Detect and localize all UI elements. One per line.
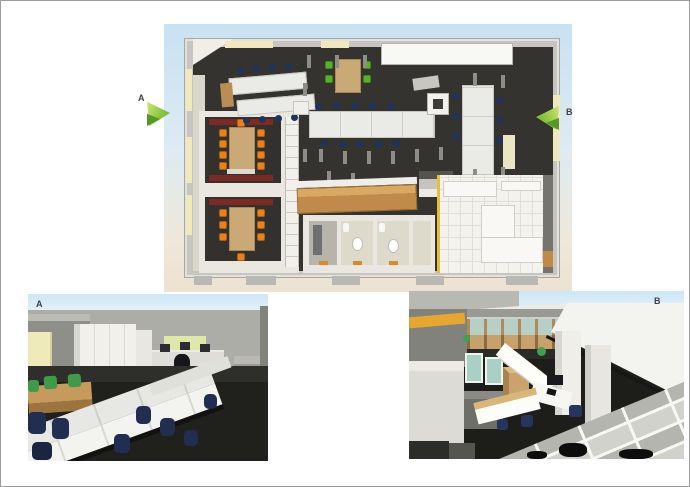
left-wall-top (28, 314, 90, 321)
chair-orange (257, 221, 265, 229)
chair-orange (219, 151, 227, 159)
chair-green (363, 75, 371, 83)
light-fixture (303, 149, 307, 162)
wall-footing (246, 276, 276, 285)
chair-green (28, 380, 39, 392)
reception-counter-wood (297, 184, 418, 214)
chair-navy (453, 133, 460, 140)
light-fixture (473, 73, 477, 86)
wall-footing (194, 276, 212, 285)
sink (379, 223, 385, 232)
chair-navy (114, 434, 130, 453)
chair-orange (219, 221, 227, 229)
chair-navy (269, 64, 276, 71)
light-fixture (335, 55, 339, 68)
printer-dark (547, 375, 563, 385)
desk-bank (462, 85, 494, 175)
chair-orange (257, 140, 265, 148)
side-cabinet (293, 101, 309, 115)
shower-panel (313, 225, 322, 255)
chair-navy (184, 430, 198, 446)
chair-navy (496, 137, 503, 144)
chair-navy (204, 394, 217, 409)
sideboard-dark-red (209, 175, 273, 181)
light-fixture (363, 55, 367, 68)
chair-navy (453, 93, 460, 100)
chair-navy (496, 117, 503, 124)
side-table-wood (220, 83, 234, 108)
door-mat (389, 261, 398, 265)
chair-orange (257, 151, 265, 159)
office-chair-black (619, 449, 653, 459)
office-chair-black (559, 443, 587, 457)
low-cabinet-gray (449, 443, 475, 459)
chair-navy (315, 103, 322, 110)
chair-navy (237, 67, 244, 74)
wall-footing (506, 276, 538, 285)
chair-navy (351, 102, 358, 109)
floor-plan-render (164, 24, 572, 292)
chair-navy (259, 116, 266, 123)
plan-marker-a-label: A (138, 94, 145, 103)
building-outline (184, 38, 560, 278)
chair-orange (237, 253, 245, 261)
sideboard-dark-red (209, 199, 273, 205)
chair-green (325, 61, 333, 69)
window-strip (321, 41, 349, 48)
view-direction-arrow-right-icon (147, 99, 171, 126)
chair-orange (257, 162, 265, 170)
chair-navy (369, 102, 376, 109)
meeting-table (229, 127, 255, 171)
chair-navy (453, 113, 460, 120)
chair-navy (496, 97, 503, 104)
chair-navy (32, 442, 52, 460)
chair-orange (219, 162, 227, 170)
storage-floor (413, 221, 431, 265)
floor-sheen (28, 366, 268, 382)
chair-orange (219, 209, 227, 217)
monitor (200, 344, 210, 352)
light-fixture (415, 149, 419, 162)
meeting-table (229, 207, 255, 251)
wall-footing (416, 276, 444, 285)
light-fixture (501, 75, 505, 88)
chair-navy (243, 117, 250, 124)
chair-navy (339, 141, 346, 148)
chair-navy (275, 115, 282, 122)
chair-navy (321, 140, 328, 147)
stool-navy (569, 405, 582, 417)
glass-screen-teal (485, 357, 503, 385)
plant-green (537, 347, 546, 356)
chair-green (44, 376, 58, 390)
chair-orange (257, 129, 265, 137)
sink (343, 223, 349, 232)
projector-table (227, 169, 255, 174)
monitor (180, 342, 190, 350)
light-fixture (303, 83, 307, 96)
light-fixture (439, 147, 443, 160)
plan-marker-b-label: B (566, 108, 573, 117)
perspective-view-a: A (28, 294, 268, 461)
chair-navy (160, 418, 175, 436)
chair-navy (357, 141, 364, 148)
chair-navy (393, 140, 400, 147)
counter-white (501, 181, 541, 191)
chair-orange (257, 209, 265, 217)
low-cabinet-dark (409, 441, 449, 459)
floor-mat-yellow (503, 135, 515, 169)
window-strip (225, 41, 273, 48)
chair-orange (219, 129, 227, 137)
view-b-label: B (654, 297, 661, 306)
wood-door (543, 251, 553, 267)
light-fixture (391, 151, 395, 164)
chair-navy (28, 412, 46, 434)
light-fixture (367, 151, 371, 164)
perspective-view-b: B (409, 291, 684, 459)
door-mat (353, 261, 362, 265)
door-mat (319, 261, 328, 265)
glass-screen-teal (465, 353, 483, 383)
yellow-wall-edge (437, 175, 440, 273)
office-chair-black (527, 451, 547, 459)
light-fixture (343, 151, 347, 164)
tall-cabinet-column (585, 345, 611, 425)
chair-orange (219, 140, 227, 148)
stool-navy (497, 419, 508, 430)
plant-green (463, 335, 470, 342)
chair-green (325, 75, 333, 83)
light-fixture (319, 149, 323, 162)
counter-white (443, 181, 497, 197)
view-direction-arrow-left-icon (535, 103, 559, 130)
chair-orange (257, 233, 265, 241)
desk-bank (309, 111, 435, 138)
window-strip (186, 137, 192, 183)
island-counter (481, 237, 543, 263)
chair-navy (52, 418, 69, 439)
chair-navy (291, 114, 298, 121)
skylight (381, 43, 513, 65)
chair-green (68, 374, 82, 388)
window-strip (186, 69, 192, 111)
view-a-label: A (36, 300, 43, 309)
chair-orange (219, 233, 227, 241)
stool-navy (521, 415, 533, 427)
monitor (160, 344, 170, 352)
chair-navy (136, 406, 151, 424)
copier-top (433, 99, 443, 109)
light-fixture (307, 55, 311, 68)
chair-navy (333, 102, 340, 109)
window-strip (186, 195, 192, 235)
wall-footing (332, 276, 360, 285)
toilet (388, 239, 399, 253)
chair-navy (387, 103, 394, 110)
chair-navy (253, 65, 260, 72)
chair-navy (375, 141, 382, 148)
presentation-sheet: A B (0, 0, 690, 487)
toilet (352, 237, 363, 251)
chair-navy (285, 63, 292, 70)
